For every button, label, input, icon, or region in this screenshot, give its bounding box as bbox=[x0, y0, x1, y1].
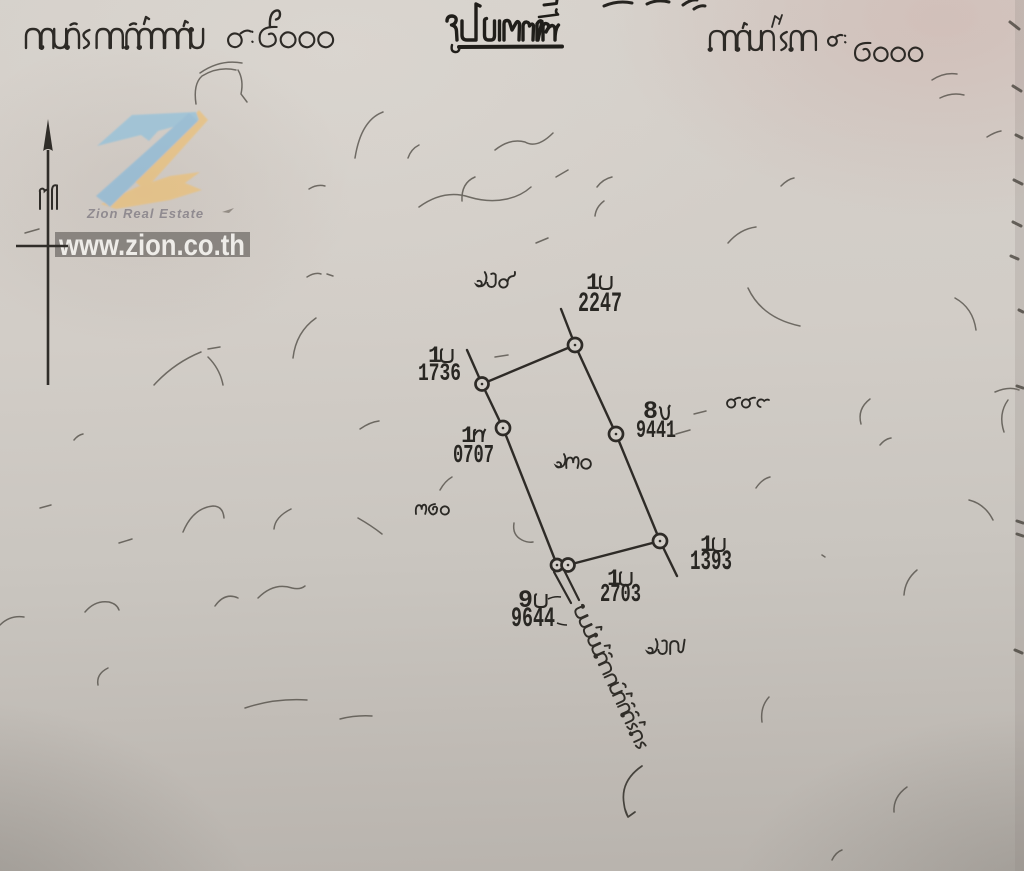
svg-text:2247: 2247 bbox=[578, 289, 622, 320]
svg-text:0707: 0707 bbox=[453, 440, 494, 470]
svg-text:9441: 9441 bbox=[636, 416, 676, 445]
svg-text:9644: 9644 bbox=[511, 604, 555, 635]
svg-text:1736: 1736 bbox=[418, 359, 461, 388]
svg-text:Zion Real Estate: Zion Real Estate bbox=[86, 206, 204, 221]
svg-text:1393: 1393 bbox=[690, 547, 732, 578]
svg-text:www.zion.co.th: www.zion.co.th bbox=[58, 229, 245, 262]
